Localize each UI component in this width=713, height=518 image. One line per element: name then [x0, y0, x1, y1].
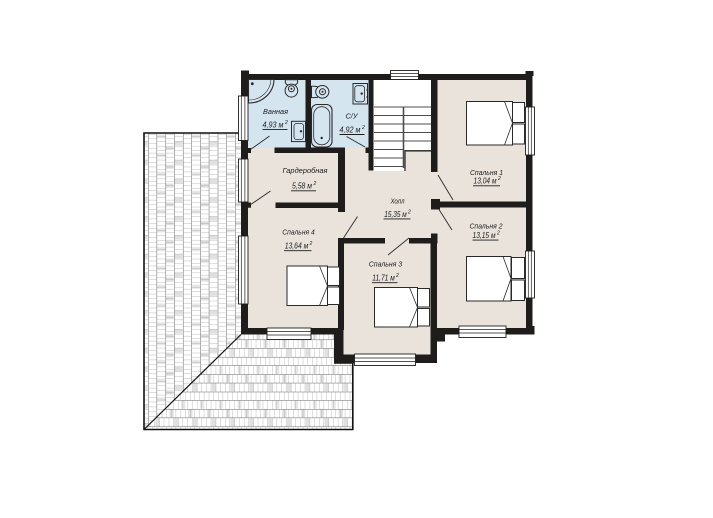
- svg-text:2: 2: [361, 125, 365, 131]
- svg-text:2: 2: [497, 176, 501, 182]
- svg-text:Спальня 3: Спальня 3: [369, 260, 403, 269]
- svg-text:5,58 м: 5,58 м: [292, 181, 312, 191]
- svg-text:2: 2: [395, 273, 399, 279]
- svg-text:2: 2: [313, 181, 317, 187]
- svg-text:Спальня 4: Спальня 4: [282, 228, 315, 237]
- svg-text:4,92 м: 4,92 м: [340, 124, 361, 134]
- svg-text:Холл: Холл: [390, 197, 405, 206]
- svg-text:2: 2: [309, 241, 313, 247]
- svg-text:15,35 м: 15,35 м: [384, 209, 407, 219]
- svg-text:2: 2: [407, 209, 411, 215]
- svg-text:2: 2: [496, 231, 500, 237]
- svg-text:13,15 м: 13,15 м: [473, 230, 496, 240]
- svg-text:4,93 м: 4,93 м: [263, 119, 284, 129]
- svg-text:2: 2: [284, 120, 288, 126]
- svg-text:Ванная: Ванная: [263, 107, 288, 116]
- svg-text:11,71 м: 11,71 м: [372, 273, 395, 283]
- svg-text:Гардеробная: Гардеробная: [283, 166, 328, 175]
- svg-text:13,04 м: 13,04 м: [474, 176, 497, 186]
- svg-text:С/У: С/У: [346, 112, 359, 121]
- svg-text:13,64 м: 13,64 м: [285, 241, 309, 251]
